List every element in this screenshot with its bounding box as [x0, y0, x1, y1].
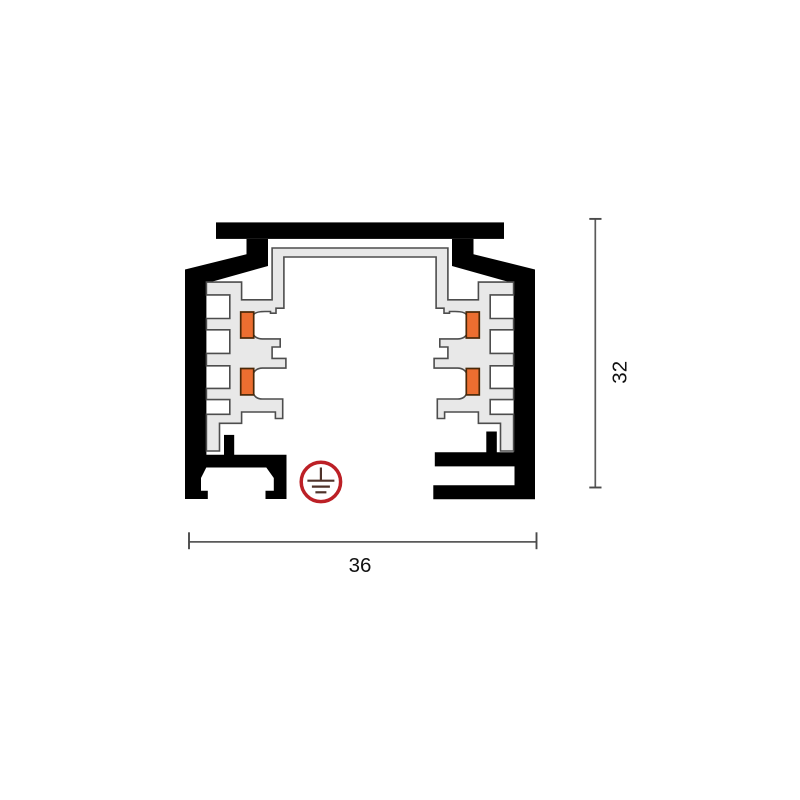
svg-text:36: 36 — [349, 554, 372, 577]
svg-text:32: 32 — [608, 361, 631, 384]
